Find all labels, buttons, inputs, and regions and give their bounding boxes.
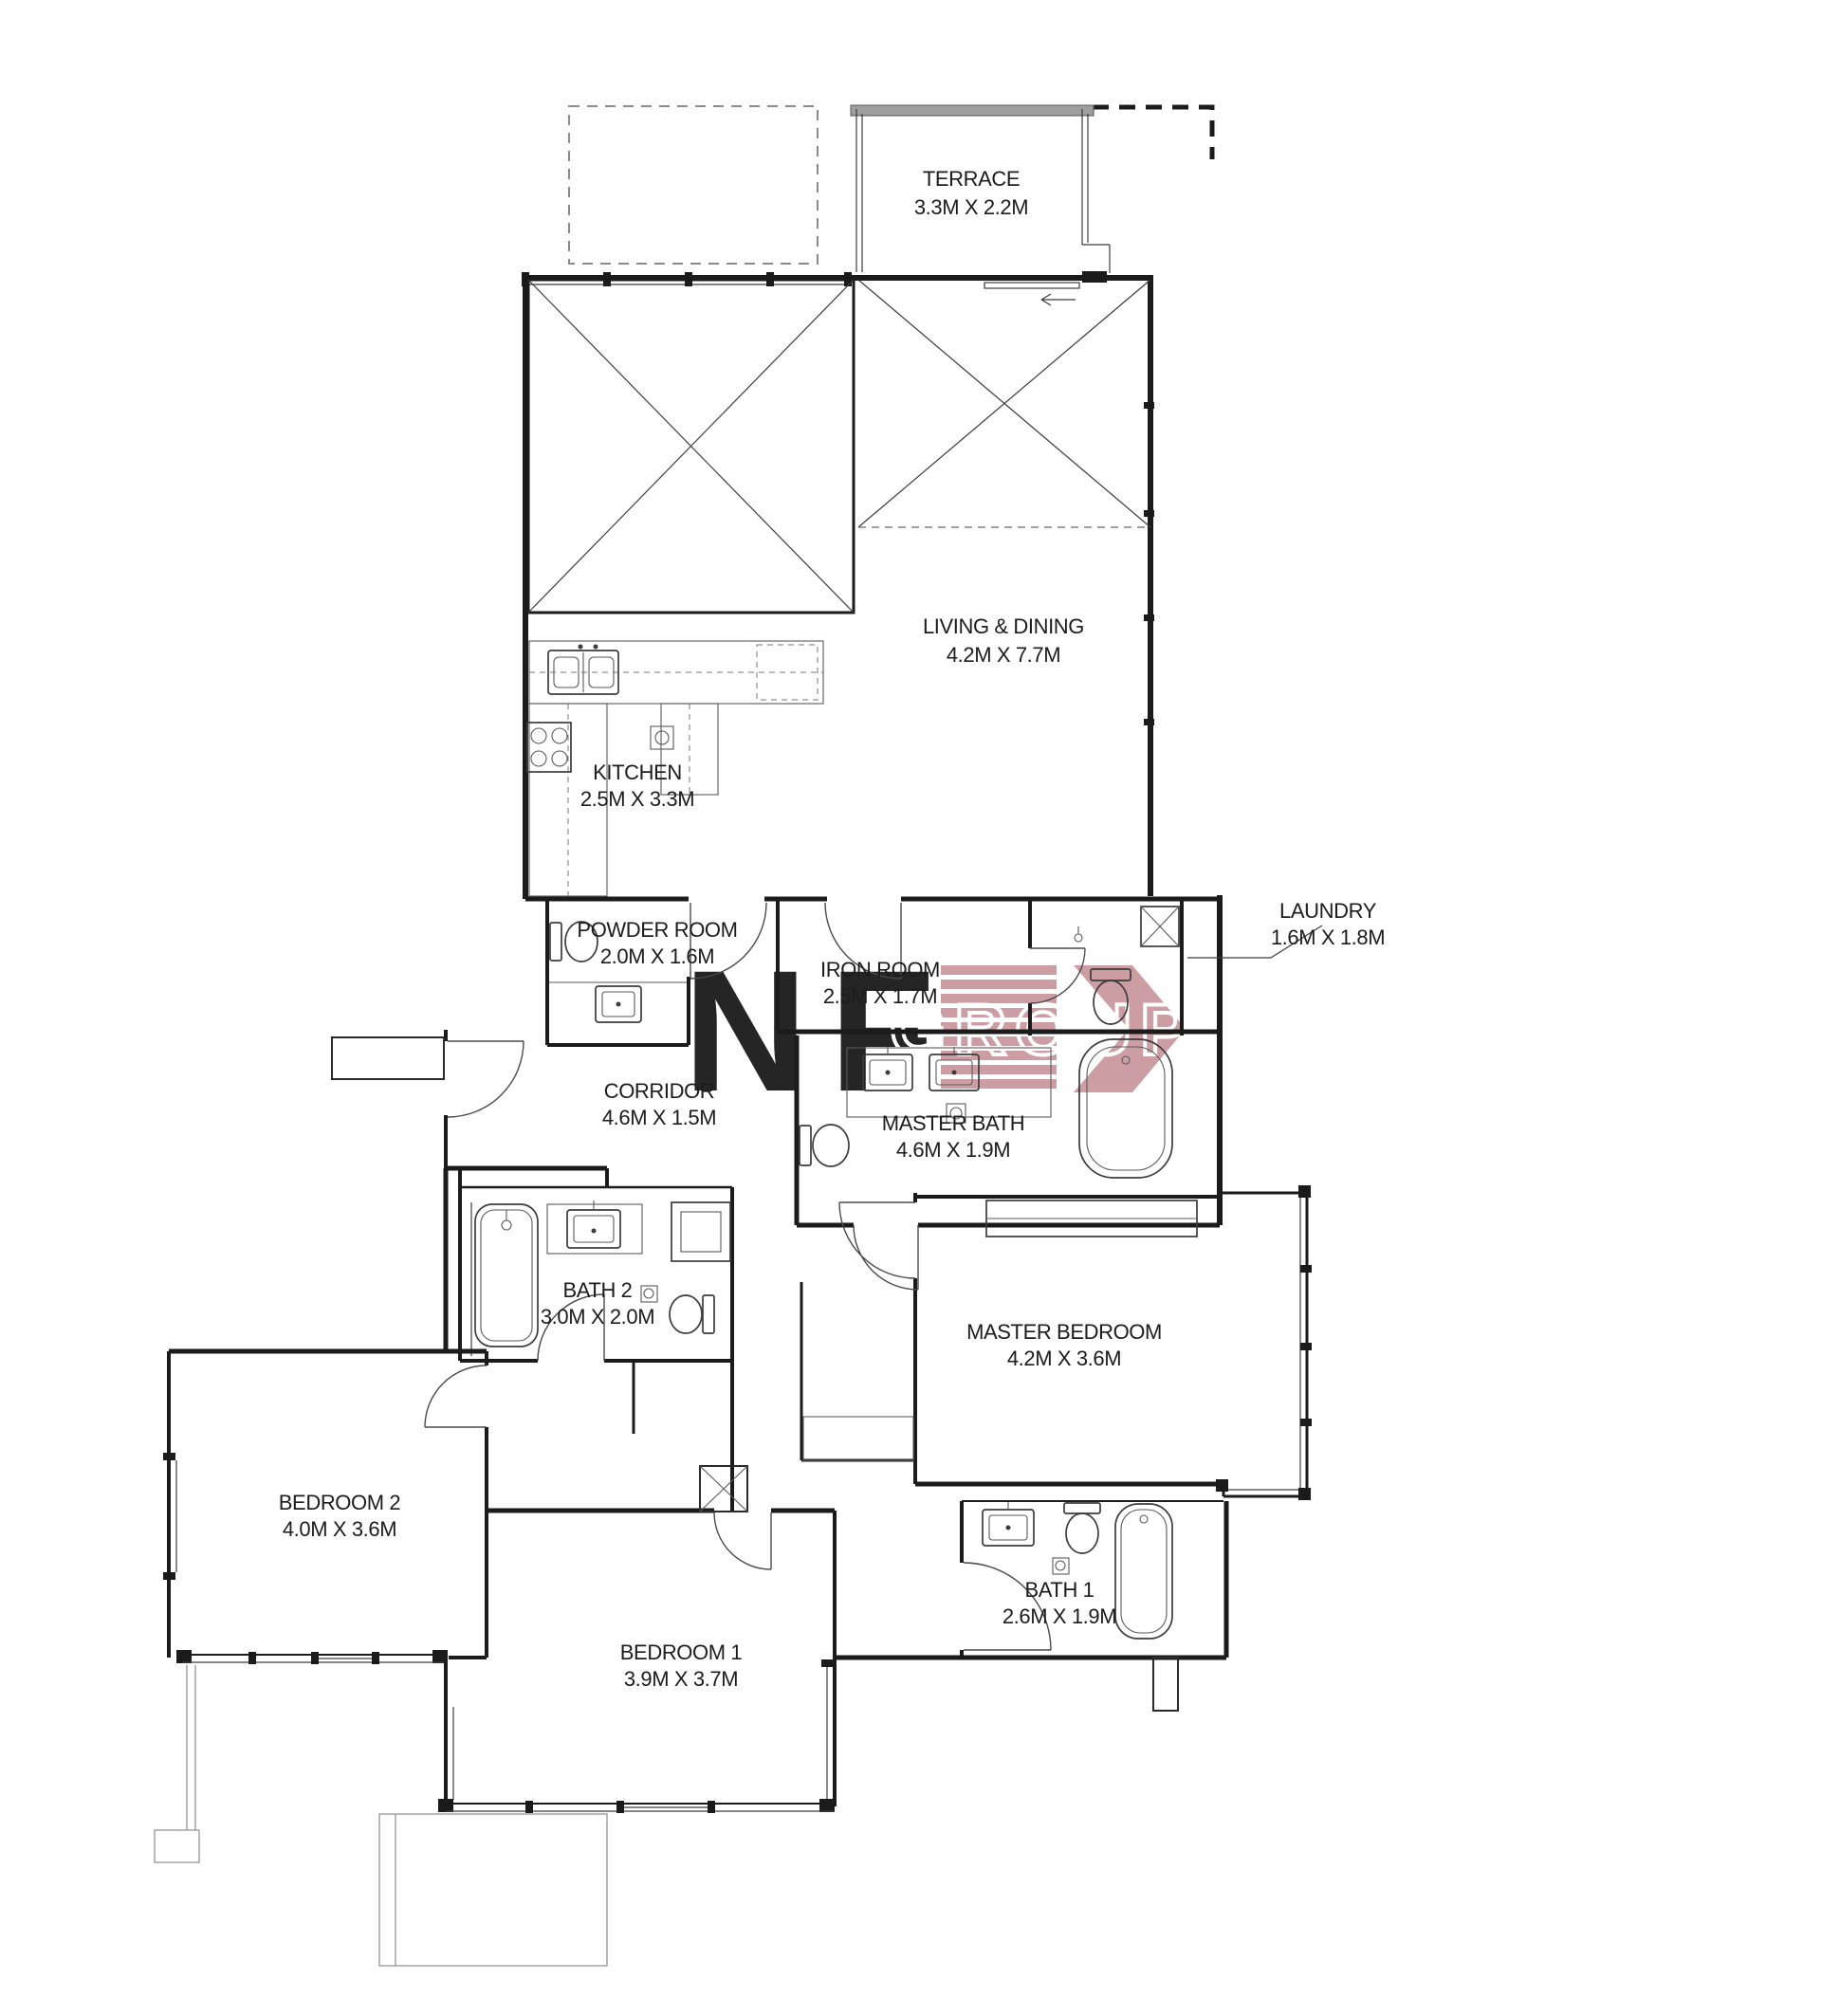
svg-text:4.2M X 7.7M: 4.2M X 7.7M — [947, 643, 1060, 667]
bath-1-sink — [983, 1502, 1034, 1546]
svg-text:BEDROOM 2: BEDROOM 2 — [279, 1491, 401, 1514]
svg-text:BATH 2: BATH 2 — [563, 1278, 633, 1302]
bedroom-2-door — [425, 1365, 487, 1427]
bath-2-sink — [547, 1200, 642, 1254]
room-label-living-dining: LIVING & DINING 4.2M X 7.7M — [923, 614, 1084, 667]
bedroom-1-door — [714, 1512, 771, 1569]
exterior-ledge — [379, 1814, 607, 1966]
svg-text:3.3M X 2.2M: 3.3M X 2.2M — [914, 195, 1028, 219]
entry-door — [448, 1041, 524, 1117]
bedroom-2-walls — [155, 1351, 487, 1862]
svg-text:2.6M X 1.9M: 2.6M X 1.9M — [1002, 1604, 1116, 1628]
svg-text:2.0M X 1.6M: 2.0M X 1.6M — [600, 944, 714, 968]
svg-text:4.0M X 3.6M: 4.0M X 3.6M — [283, 1517, 396, 1541]
svg-text:TERRACE: TERRACE — [923, 167, 1020, 191]
entry-arrow-icon — [1041, 294, 1076, 305]
dashed-corner — [1093, 107, 1212, 159]
kitchen-stove — [527, 723, 571, 772]
svg-text:KITCHEN: KITCHEN — [593, 761, 682, 784]
svg-text:CORRIDOR: CORRIDOR — [604, 1079, 715, 1103]
room-label-master-bedroom: MASTER BEDROOM 4.2M X 3.6M — [966, 1320, 1162, 1370]
svg-text:MASTER BATH: MASTER BATH — [882, 1111, 1024, 1135]
kitchen-appliance — [651, 726, 673, 749]
svg-text:4.2M X 3.6M: 4.2M X 3.6M — [1007, 1347, 1121, 1370]
svg-text:3.9M X 3.7M: 3.9M X 3.7M — [624, 1667, 738, 1691]
bath-1-tub — [1115, 1504, 1172, 1639]
svg-text:BEDROOM 1: BEDROOM 1 — [620, 1640, 743, 1664]
dashed-outline-box — [569, 106, 818, 264]
kitchen-sink — [548, 645, 618, 695]
shaft-x-box-left — [528, 280, 854, 613]
room-label-bedroom-2: BEDROOM 2 4.0M X 3.6M — [279, 1491, 401, 1541]
svg-text:POWDER ROOM: POWDER ROOM — [577, 918, 737, 942]
bath-2-walls — [460, 1168, 732, 1511]
svg-text:2.5M X 3.3M: 2.5M X 3.3M — [580, 787, 694, 811]
bedroom-1-walls — [379, 1511, 835, 1966]
void-x-area-right — [858, 280, 1150, 527]
svg-text:2.5M X 1.7M: 2.5M X 1.7M — [823, 984, 937, 1008]
svg-text:4.6M X 1.9M: 4.6M X 1.9M — [896, 1138, 1010, 1162]
room-label-master-bath: MASTER BATH 4.6M X 1.9M — [882, 1111, 1024, 1162]
laundry-washer — [1141, 907, 1179, 946]
svg-text:1.6M X 1.8M: 1.6M X 1.8M — [1271, 926, 1385, 949]
room-label-terrace: TERRACE 3.3M X 2.2M — [914, 167, 1028, 219]
master-bedroom-door — [839, 1202, 915, 1278]
room-label-kitchen: KITCHEN 2.5M X 3.3M — [580, 761, 694, 811]
entry-nook — [332, 1037, 444, 1079]
svg-text:3.0M X 2.0M: 3.0M X 2.0M — [541, 1305, 654, 1329]
bath-2-tub — [475, 1204, 538, 1347]
exterior-step — [1153, 1658, 1178, 1711]
room-label-bath-1: BATH 1 2.6M X 1.9M — [1002, 1578, 1116, 1628]
bath-1-toilet — [1053, 1503, 1100, 1574]
powder-sink — [596, 986, 641, 1022]
svg-text:MASTER BEDROOM: MASTER BEDROOM — [966, 1320, 1162, 1344]
master-bedroom-wardrobe — [986, 1200, 1197, 1237]
bath-2-shower — [671, 1202, 730, 1261]
floor-plan: N F GROUP — [0, 0, 1821, 2016]
room-label-bedroom-1: BEDROOM 1 3.9M X 3.7M — [620, 1640, 743, 1691]
svg-text:IRON ROOM: IRON ROOM — [820, 958, 940, 981]
svg-text:LIVING & DINING: LIVING & DINING — [923, 614, 1084, 638]
svg-text:LAUNDRY: LAUNDRY — [1279, 899, 1377, 923]
room-label-bath-2: BATH 2 3.0M X 2.0M — [541, 1278, 654, 1329]
room-label-laundry: LAUNDRY 1.6M X 1.8M — [1271, 899, 1385, 949]
svg-text:4.6M X 1.5M: 4.6M X 1.5M — [602, 1106, 716, 1129]
master-bath-toilet — [800, 1125, 849, 1166]
svg-text:BATH 1: BATH 1 — [1025, 1578, 1094, 1602]
